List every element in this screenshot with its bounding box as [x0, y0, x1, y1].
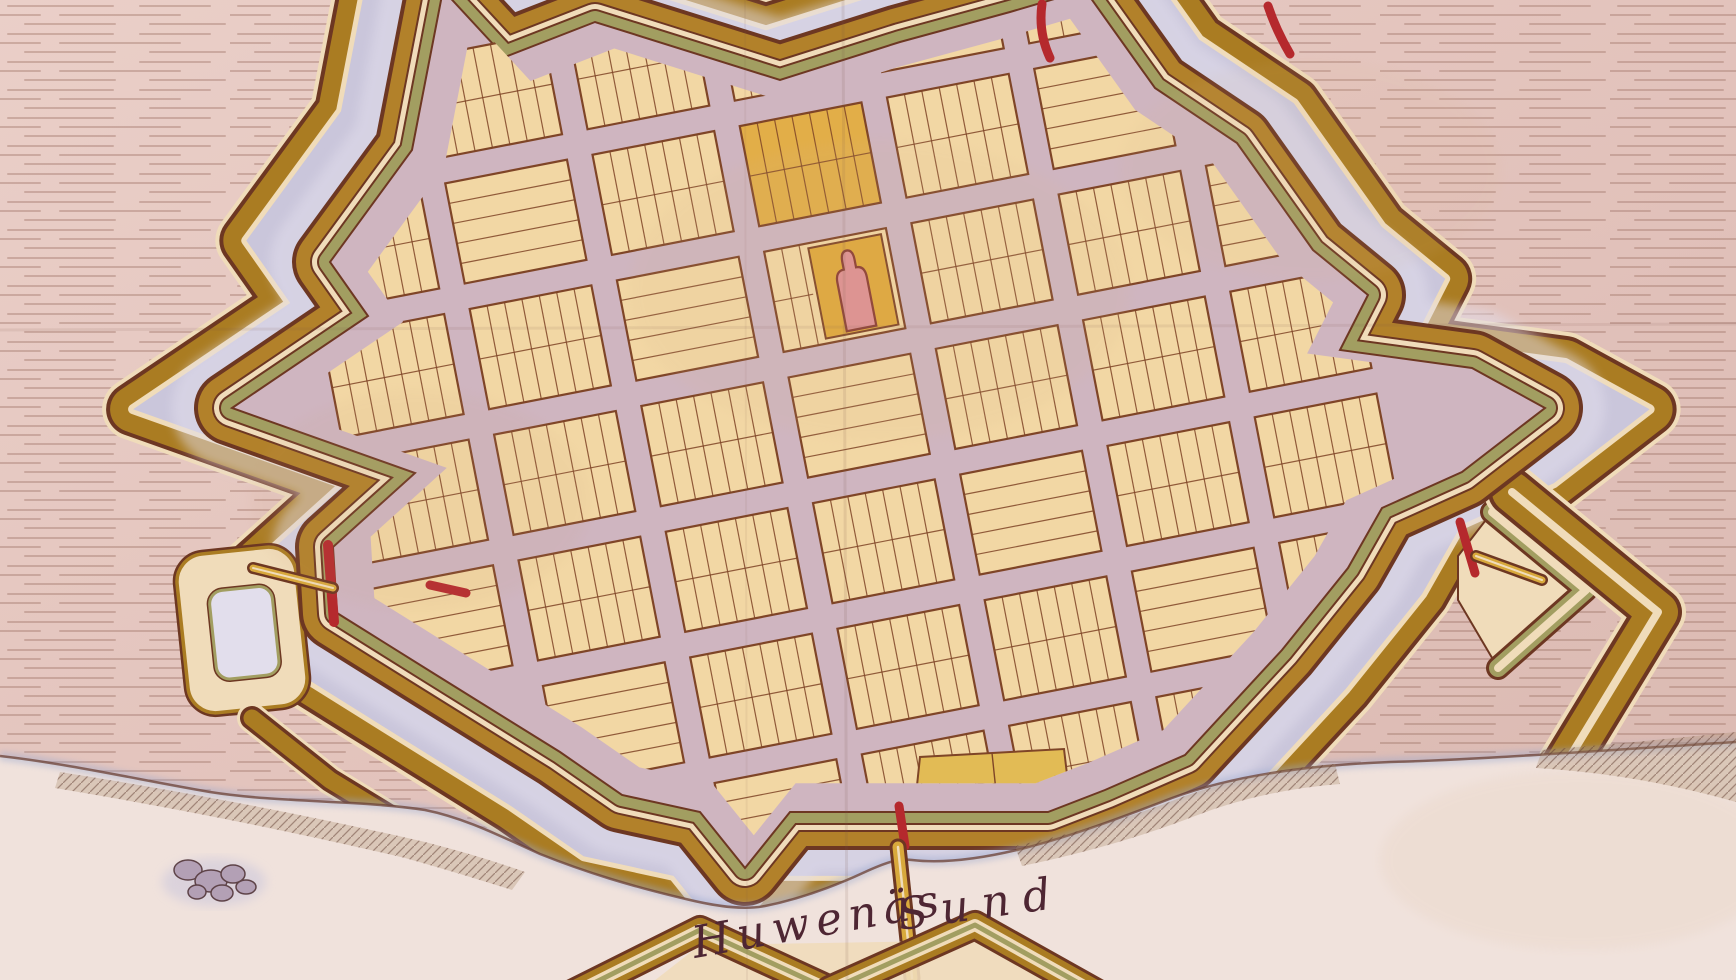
fortification-map: Huwenäs Sund: [0, 0, 1736, 980]
town-block: [445, 160, 586, 284]
paper-stain: [630, 140, 1130, 440]
west-hornwork-inner: [210, 587, 279, 679]
town-block: [960, 451, 1101, 575]
islet-rock: [188, 885, 206, 899]
islet-rock: [211, 885, 233, 901]
paper-stain: [250, 390, 590, 610]
paper-stain: [1120, 60, 1500, 280]
islet-rock: [236, 880, 256, 894]
map-page: Huwenäs Sund: [0, 0, 1736, 980]
